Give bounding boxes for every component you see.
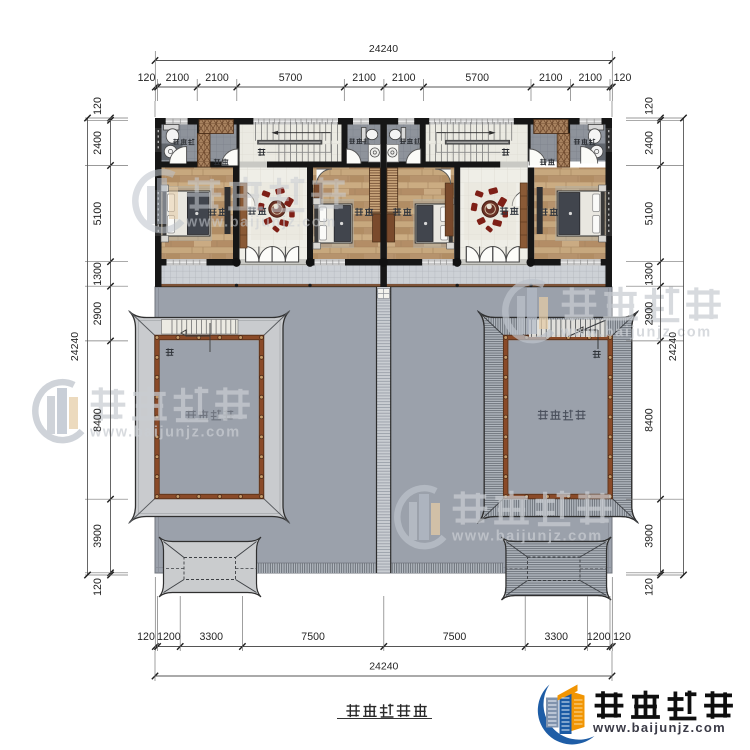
svg-text:5700: 5700 xyxy=(279,72,303,84)
svg-text:120: 120 xyxy=(614,72,632,84)
svg-text:3300: 3300 xyxy=(545,631,569,643)
svg-text:8400: 8400 xyxy=(92,408,104,432)
svg-text:7500: 7500 xyxy=(301,631,325,643)
svg-text:2400: 2400 xyxy=(644,131,656,155)
svg-text:1200: 1200 xyxy=(157,631,181,643)
svg-text:2400: 2400 xyxy=(92,131,104,155)
svg-text:www.baijunjz.com: www.baijunjz.com xyxy=(560,325,712,341)
svg-text:2100: 2100 xyxy=(539,72,563,84)
svg-text:2100: 2100 xyxy=(352,72,376,84)
svg-text:1300: 1300 xyxy=(644,262,656,286)
svg-text:8400: 8400 xyxy=(644,408,656,432)
svg-text:5100: 5100 xyxy=(644,202,656,226)
svg-text:7500: 7500 xyxy=(443,631,467,643)
svg-text:120: 120 xyxy=(138,72,156,84)
svg-text:2100: 2100 xyxy=(392,72,416,84)
svg-text:2100: 2100 xyxy=(205,72,229,84)
svg-text:120: 120 xyxy=(644,97,656,115)
svg-text:2900: 2900 xyxy=(92,302,104,326)
svg-text:www.baijunjz.com: www.baijunjz.com xyxy=(592,720,726,735)
svg-text:120: 120 xyxy=(92,97,104,115)
svg-text:2100: 2100 xyxy=(579,72,603,84)
svg-text:2900: 2900 xyxy=(644,302,656,326)
svg-text:24240: 24240 xyxy=(369,661,398,673)
svg-text:24240: 24240 xyxy=(369,43,398,55)
svg-text:1200: 1200 xyxy=(587,631,611,643)
svg-text:120: 120 xyxy=(644,578,656,596)
svg-text:www.baijunjz.com: www.baijunjz.com xyxy=(451,529,603,545)
svg-text:120: 120 xyxy=(92,578,104,596)
svg-text:1300: 1300 xyxy=(92,262,104,286)
svg-text:5100: 5100 xyxy=(92,202,104,226)
svg-text:www.baijunjz.com: www.baijunjz.com xyxy=(89,425,241,441)
svg-text:3300: 3300 xyxy=(200,631,224,643)
svg-text:www.baijunjz.com: www.baijunjz.com xyxy=(185,215,337,231)
svg-text:24240: 24240 xyxy=(69,332,81,361)
svg-text:120: 120 xyxy=(137,631,155,643)
svg-text:5700: 5700 xyxy=(465,72,489,84)
svg-text:3900: 3900 xyxy=(92,524,104,548)
svg-text:2100: 2100 xyxy=(166,72,190,84)
svg-text:120: 120 xyxy=(613,631,631,643)
svg-text:3900: 3900 xyxy=(644,524,656,548)
svg-text:24240: 24240 xyxy=(667,332,679,361)
